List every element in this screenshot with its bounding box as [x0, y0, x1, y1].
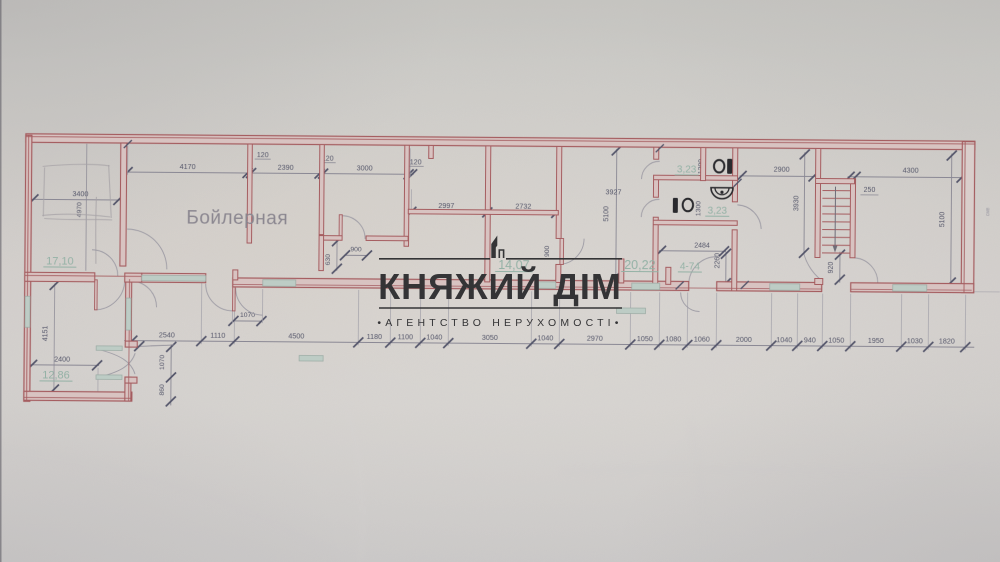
svg-text:3,23: 3,23 — [677, 164, 697, 175]
svg-text:1300: 1300 — [695, 201, 702, 216]
svg-text:3927: 3927 — [605, 187, 621, 196]
svg-text:1050: 1050 — [637, 334, 653, 343]
svg-text:920: 920 — [828, 262, 835, 274]
svg-text:1040: 1040 — [537, 333, 553, 342]
svg-text:2390: 2390 — [278, 163, 294, 172]
svg-text:2732: 2732 — [515, 202, 531, 211]
svg-text:1060: 1060 — [694, 335, 710, 344]
svg-text:1050: 1050 — [828, 336, 844, 345]
svg-text:2997: 2997 — [438, 201, 454, 210]
svg-text:1100: 1100 — [398, 332, 414, 341]
svg-text:2970: 2970 — [587, 334, 603, 343]
svg-text:630: 630 — [325, 254, 332, 266]
svg-text:900: 900 — [350, 246, 362, 253]
svg-text:1040: 1040 — [776, 335, 792, 344]
svg-text:12,86: 12,86 — [42, 369, 70, 381]
svg-text:1950: 1950 — [868, 336, 884, 345]
svg-text:1110: 1110 — [210, 331, 225, 340]
svg-text:250: 250 — [864, 187, 876, 194]
svg-text:4151: 4151 — [42, 326, 49, 342]
svg-text:3050: 3050 — [482, 333, 498, 342]
svg-text:1070: 1070 — [159, 355, 166, 370]
svg-text:3000: 3000 — [357, 163, 373, 172]
svg-text:4300: 4300 — [903, 166, 919, 175]
svg-text:Бойлерная: Бойлерная — [186, 208, 288, 230]
svg-text:смв: смв — [985, 207, 991, 216]
svg-text:КНЯЖИЙ ДІМ: КНЯЖИЙ ДІМ — [378, 265, 622, 307]
svg-text:1180: 1180 — [367, 332, 383, 341]
svg-text:2540: 2540 — [159, 330, 175, 339]
svg-text:2400: 2400 — [54, 355, 70, 364]
svg-text:1820: 1820 — [939, 336, 955, 345]
svg-text:•АГЕНТСТВО НЕРУХОМОСТІ•: •АГЕНТСТВО НЕРУХОМОСТІ• — [377, 317, 622, 329]
svg-text:1030: 1030 — [907, 336, 923, 345]
svg-text:120: 120 — [257, 152, 269, 159]
svg-text:4-74: 4-74 — [680, 261, 701, 272]
svg-text:2000: 2000 — [736, 335, 752, 344]
svg-text:4170: 4170 — [180, 162, 196, 171]
svg-text:20,22: 20,22 — [624, 258, 655, 272]
svg-text:2484: 2484 — [694, 243, 710, 250]
svg-text:5100: 5100 — [939, 212, 946, 228]
svg-text:3,23: 3,23 — [708, 206, 728, 217]
svg-text:860: 860 — [159, 384, 166, 396]
svg-text:940: 940 — [804, 335, 816, 344]
svg-text:17,10: 17,10 — [46, 255, 74, 267]
svg-text:120: 120 — [410, 159, 422, 166]
svg-text:3930: 3930 — [793, 195, 800, 211]
svg-text:2900: 2900 — [774, 165, 790, 174]
svg-text:2260: 2260 — [714, 253, 721, 269]
svg-text:4500: 4500 — [288, 331, 304, 340]
svg-text:900: 900 — [544, 245, 551, 257]
svg-text:1080: 1080 — [665, 334, 681, 343]
svg-text:5100: 5100 — [603, 206, 610, 222]
svg-text:1040: 1040 — [426, 332, 442, 341]
